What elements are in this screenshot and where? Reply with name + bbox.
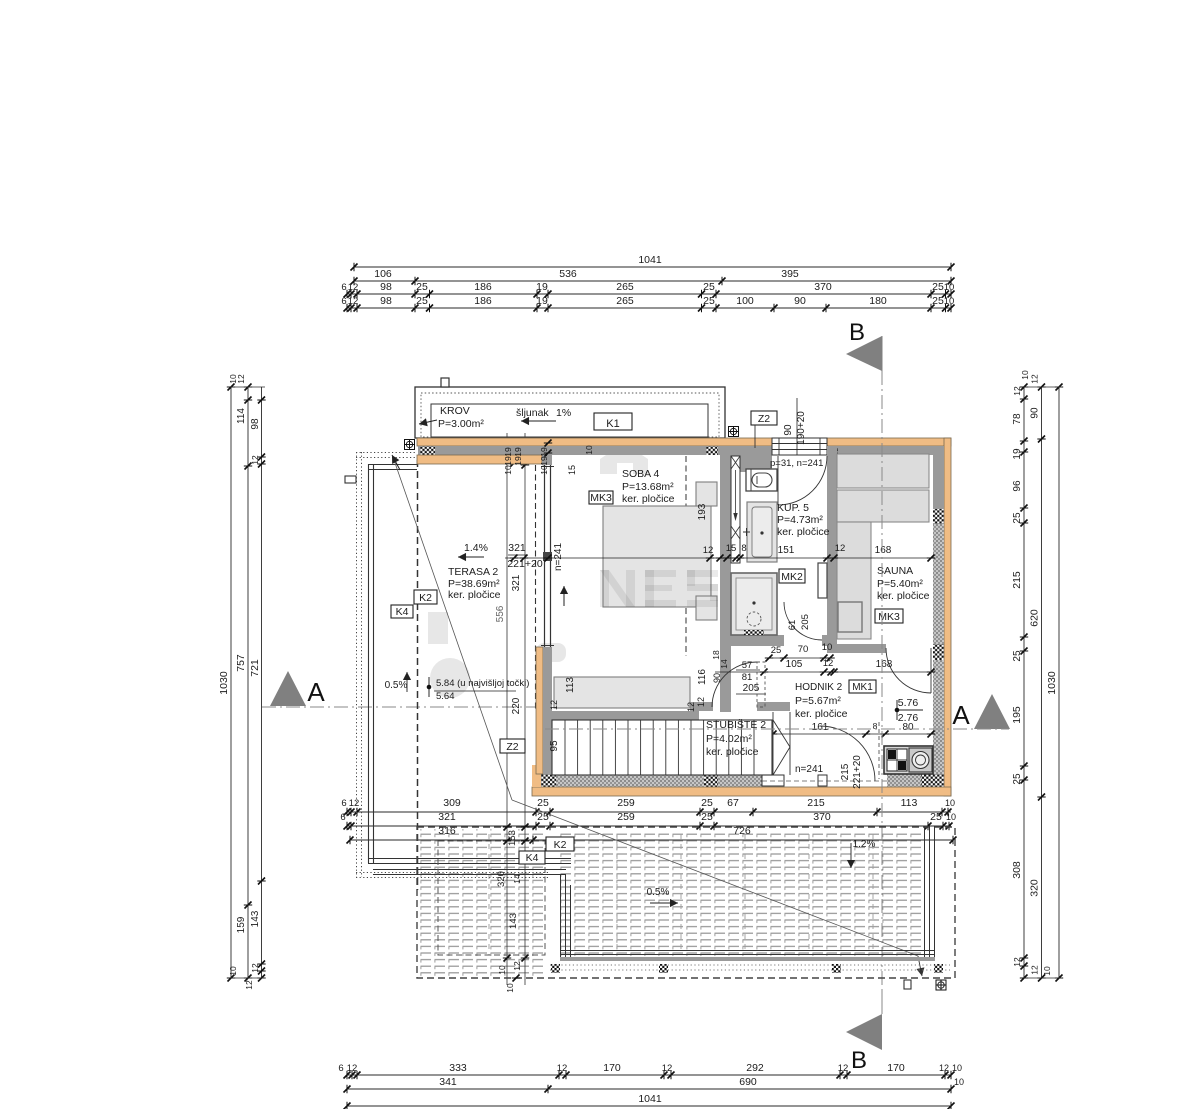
svg-text:A: A [952, 700, 970, 730]
svg-text:161: 161 [812, 722, 829, 733]
svg-text:395: 395 [781, 268, 799, 280]
svg-text:25: 25 [701, 797, 713, 809]
svg-text:15: 15 [567, 465, 577, 475]
svg-text:10: 10 [497, 965, 507, 975]
svg-text:90: 90 [794, 295, 806, 307]
svg-text:ker. pločice: ker. pločice [877, 590, 930, 602]
svg-text:12: 12 [823, 658, 834, 669]
svg-text:19: 19 [536, 281, 548, 293]
svg-text:321: 321 [508, 542, 526, 554]
svg-text:8: 8 [741, 543, 746, 554]
svg-text:P=4.73m²: P=4.73m² [777, 514, 823, 526]
svg-text:6: 6 [340, 812, 345, 823]
svg-text:1.4%: 1.4% [464, 542, 488, 554]
svg-text:KUP. 5: KUP. 5 [777, 502, 809, 514]
svg-text:6: 6 [341, 296, 346, 307]
svg-text:143: 143 [250, 910, 261, 927]
svg-text:25: 25 [537, 797, 549, 809]
svg-text:159: 159 [236, 916, 247, 933]
svg-text:6: 6 [338, 1063, 343, 1074]
svg-text:320: 320 [496, 871, 507, 887]
svg-text:259: 259 [617, 811, 635, 823]
svg-text:10: 10 [505, 983, 515, 993]
svg-text:10: 10 [944, 282, 955, 293]
svg-text:MK1: MK1 [852, 682, 873, 693]
svg-text:221+20: 221+20 [852, 755, 863, 789]
svg-text:n=241: n=241 [553, 543, 564, 572]
svg-text:321: 321 [438, 811, 456, 823]
svg-text:57: 57 [742, 660, 753, 671]
svg-text:12: 12 [244, 980, 254, 990]
svg-text:308: 308 [1011, 861, 1023, 879]
svg-text:19: 19 [1012, 448, 1023, 460]
svg-text:90: 90 [783, 424, 794, 436]
svg-text:195: 195 [1011, 706, 1023, 724]
svg-text:1%: 1% [556, 407, 571, 419]
svg-text:TERASA 2: TERASA 2 [448, 566, 498, 578]
svg-text:12: 12 [838, 1063, 849, 1074]
svg-text:1041: 1041 [638, 254, 662, 266]
svg-text:96: 96 [1012, 480, 1023, 492]
svg-text:105: 105 [786, 659, 803, 670]
svg-text:292: 292 [746, 1062, 764, 1074]
svg-text:321: 321 [511, 574, 522, 591]
svg-text:114: 114 [236, 408, 247, 424]
svg-text:19: 19 [539, 447, 549, 457]
svg-text:265: 265 [616, 295, 634, 307]
svg-text:220: 220 [511, 697, 522, 714]
svg-text:10: 10 [584, 445, 594, 455]
svg-text:12: 12 [1030, 374, 1040, 384]
svg-text:67: 67 [727, 797, 739, 809]
svg-text:265: 265 [616, 281, 634, 293]
svg-text:P=4.02m²: P=4.02m² [706, 733, 752, 745]
svg-text:25: 25 [1012, 773, 1023, 785]
svg-text:100: 100 [736, 295, 754, 307]
svg-text:186: 186 [474, 281, 492, 293]
svg-text:10: 10 [503, 465, 513, 475]
svg-text:536: 536 [559, 268, 577, 280]
svg-text:ker. pločice: ker. pločice [795, 708, 848, 720]
svg-text:ker. pločice: ker. pločice [622, 493, 675, 505]
svg-text:B: B [851, 1047, 867, 1074]
svg-text:19: 19 [536, 295, 548, 307]
svg-text:12: 12 [557, 1063, 568, 1074]
svg-text:757: 757 [235, 654, 247, 672]
svg-text:A: A [307, 677, 325, 707]
svg-text:333: 333 [449, 1062, 467, 1074]
svg-text:ker. pločice: ker. pločice [448, 589, 501, 601]
svg-text:12: 12 [939, 1063, 949, 1073]
svg-text:153: 153 [507, 830, 518, 846]
svg-text:0.5%: 0.5% [647, 887, 670, 898]
svg-text:18: 18 [711, 650, 721, 660]
svg-text:61: 61 [787, 620, 798, 631]
svg-text:25: 25 [930, 811, 942, 823]
svg-text:19: 19 [503, 456, 513, 466]
svg-text:MK3: MK3 [878, 611, 900, 623]
svg-text:215: 215 [1011, 571, 1023, 589]
svg-text:5.76: 5.76 [898, 697, 919, 709]
svg-text:10: 10 [946, 812, 956, 822]
svg-text:98: 98 [380, 295, 392, 307]
svg-text:10: 10 [954, 1077, 964, 1087]
svg-text:14: 14 [512, 874, 522, 884]
svg-text:ker. pločice: ker. pločice [706, 746, 759, 758]
svg-text:25: 25 [703, 295, 715, 307]
svg-text:25: 25 [416, 281, 428, 293]
svg-text:P=5.40m²: P=5.40m² [877, 578, 923, 590]
svg-text:90: 90 [712, 673, 722, 683]
svg-text:78: 78 [1012, 413, 1023, 425]
svg-text:370: 370 [813, 811, 831, 823]
svg-text:12: 12 [1012, 957, 1022, 967]
svg-text:12: 12 [348, 296, 359, 307]
svg-text:95: 95 [549, 740, 560, 752]
svg-text:K4: K4 [396, 606, 409, 618]
svg-text:690: 690 [739, 1076, 757, 1088]
svg-text:25: 25 [932, 295, 944, 307]
svg-text:5.84 (u najvišljoj točki): 5.84 (u najvišljoj točki) [436, 678, 529, 689]
svg-text:12: 12 [349, 798, 360, 809]
svg-text:70: 70 [798, 644, 809, 655]
svg-text:10: 10 [952, 1063, 962, 1073]
svg-text:25: 25 [932, 281, 944, 293]
svg-text:620: 620 [1029, 609, 1041, 627]
svg-text:98: 98 [250, 418, 261, 430]
svg-text:10: 10 [944, 296, 955, 307]
svg-text:25: 25 [701, 811, 713, 823]
svg-text:12: 12 [703, 545, 714, 556]
svg-text:5.64: 5.64 [436, 691, 455, 702]
svg-text:15: 15 [726, 543, 737, 554]
svg-text:10: 10 [228, 374, 238, 384]
svg-text:Z2: Z2 [506, 741, 518, 753]
svg-text:12: 12 [348, 282, 359, 293]
svg-text:19: 19 [503, 447, 513, 457]
svg-text:193: 193 [697, 503, 708, 520]
svg-text:SOBA 4: SOBA 4 [622, 468, 660, 480]
svg-text:10: 10 [945, 798, 955, 808]
svg-text:25: 25 [537, 811, 549, 823]
svg-text:12: 12 [250, 963, 260, 973]
svg-text:113: 113 [565, 677, 576, 693]
svg-text:K1: K1 [606, 418, 619, 430]
svg-text:1030: 1030 [218, 671, 230, 695]
svg-text:P=13.68m²: P=13.68m² [622, 481, 674, 493]
svg-text:168: 168 [875, 545, 892, 556]
svg-text:309: 309 [443, 797, 461, 809]
svg-text:168: 168 [876, 659, 893, 670]
svg-text:n=241: n=241 [795, 764, 824, 775]
svg-text:215: 215 [840, 763, 851, 780]
svg-text:P=5.67m²: P=5.67m² [795, 695, 841, 707]
svg-text:12: 12 [696, 697, 706, 707]
svg-text:25: 25 [416, 295, 428, 307]
svg-text:12: 12 [662, 1063, 673, 1074]
svg-text:10: 10 [822, 642, 833, 653]
svg-text:143: 143 [508, 913, 519, 929]
svg-text:10: 10 [539, 465, 549, 475]
svg-text:113: 113 [901, 797, 918, 809]
svg-text:116: 116 [697, 669, 708, 685]
svg-text:180: 180 [869, 295, 887, 307]
svg-text:1041: 1041 [638, 1093, 662, 1105]
svg-text:19: 19 [513, 447, 523, 457]
svg-text:81: 81 [742, 672, 753, 683]
svg-text:341: 341 [439, 1076, 457, 1088]
svg-text:P=3.00m²: P=3.00m² [438, 418, 484, 430]
svg-text:12: 12 [1030, 965, 1040, 975]
svg-text:6: 6 [341, 798, 346, 809]
svg-text:98: 98 [380, 281, 392, 293]
svg-text:1.2%: 1.2% [853, 839, 876, 850]
svg-text:186: 186 [474, 295, 492, 307]
svg-text:Z2: Z2 [758, 413, 770, 425]
svg-text:12: 12 [250, 455, 260, 465]
svg-text:80: 80 [902, 722, 914, 733]
svg-text:K4: K4 [526, 852, 539, 864]
svg-text:6: 6 [341, 282, 346, 293]
svg-text:170: 170 [603, 1062, 621, 1074]
svg-text:25: 25 [703, 281, 715, 293]
svg-text:215: 215 [807, 797, 825, 809]
svg-text:12: 12 [835, 543, 846, 554]
svg-text:MK2: MK2 [781, 571, 803, 583]
svg-text:12: 12 [549, 700, 559, 710]
svg-text:106: 106 [374, 268, 392, 280]
svg-text:0.5%: 0.5% [385, 680, 408, 691]
svg-text:K2: K2 [554, 839, 567, 851]
svg-text:šljunak: šljunak [516, 407, 549, 419]
svg-text:K2: K2 [419, 592, 432, 604]
svg-text:14: 14 [719, 659, 729, 669]
svg-text:12: 12 [347, 1063, 358, 1074]
svg-text:1030: 1030 [1046, 671, 1058, 695]
svg-text:MK3: MK3 [590, 492, 612, 504]
svg-text:90: 90 [1030, 407, 1041, 419]
svg-text:259: 259 [617, 797, 635, 809]
svg-text:KROV: KROV [440, 405, 470, 417]
svg-text:12: 12 [1012, 386, 1022, 396]
svg-text:19: 19 [539, 456, 549, 466]
svg-text:25: 25 [771, 645, 782, 656]
svg-text:320: 320 [1029, 879, 1041, 897]
svg-text:B: B [849, 319, 865, 346]
svg-text:10: 10 [1020, 370, 1030, 380]
svg-text:12: 12 [686, 702, 696, 712]
svg-text:25: 25 [1012, 512, 1023, 524]
svg-text:12: 12 [512, 961, 522, 971]
svg-text:370: 370 [814, 281, 832, 293]
svg-text:19: 19 [513, 456, 523, 466]
svg-text:721: 721 [249, 659, 261, 677]
svg-text:205: 205 [800, 614, 811, 630]
svg-text:ker. pločice: ker. pločice [777, 526, 830, 538]
svg-text:556: 556 [495, 605, 506, 622]
svg-text:151: 151 [778, 545, 795, 556]
svg-text:170: 170 [887, 1062, 905, 1074]
svg-text:HODNIK 2: HODNIK 2 [795, 682, 843, 693]
svg-text:190+20: 190+20 [796, 411, 807, 445]
svg-text:10: 10 [1042, 966, 1052, 976]
svg-text:10: 10 [228, 966, 238, 976]
svg-text:25: 25 [1012, 650, 1023, 662]
